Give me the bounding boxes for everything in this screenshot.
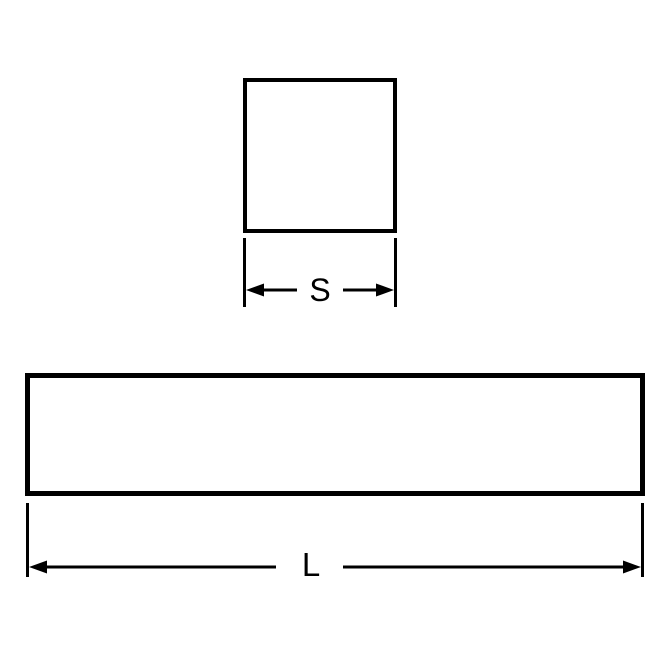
cross-section-view: S [245,80,396,308]
l-arrowhead-right-icon [623,561,641,574]
s-arrowhead-right-icon [376,284,394,297]
square-cross-section-outline [245,80,395,231]
length-view: L [28,376,643,584]
key-bar-outline [28,376,643,494]
diagram-svg: S L [0,0,670,670]
dimension-diagram: S L [0,0,670,670]
s-dimension-label: S [309,272,330,308]
l-dimension-label: L [302,546,320,583]
l-arrowhead-left-icon [29,561,47,574]
l-dimension-line [29,561,641,574]
s-arrowhead-left-icon [246,284,264,297]
